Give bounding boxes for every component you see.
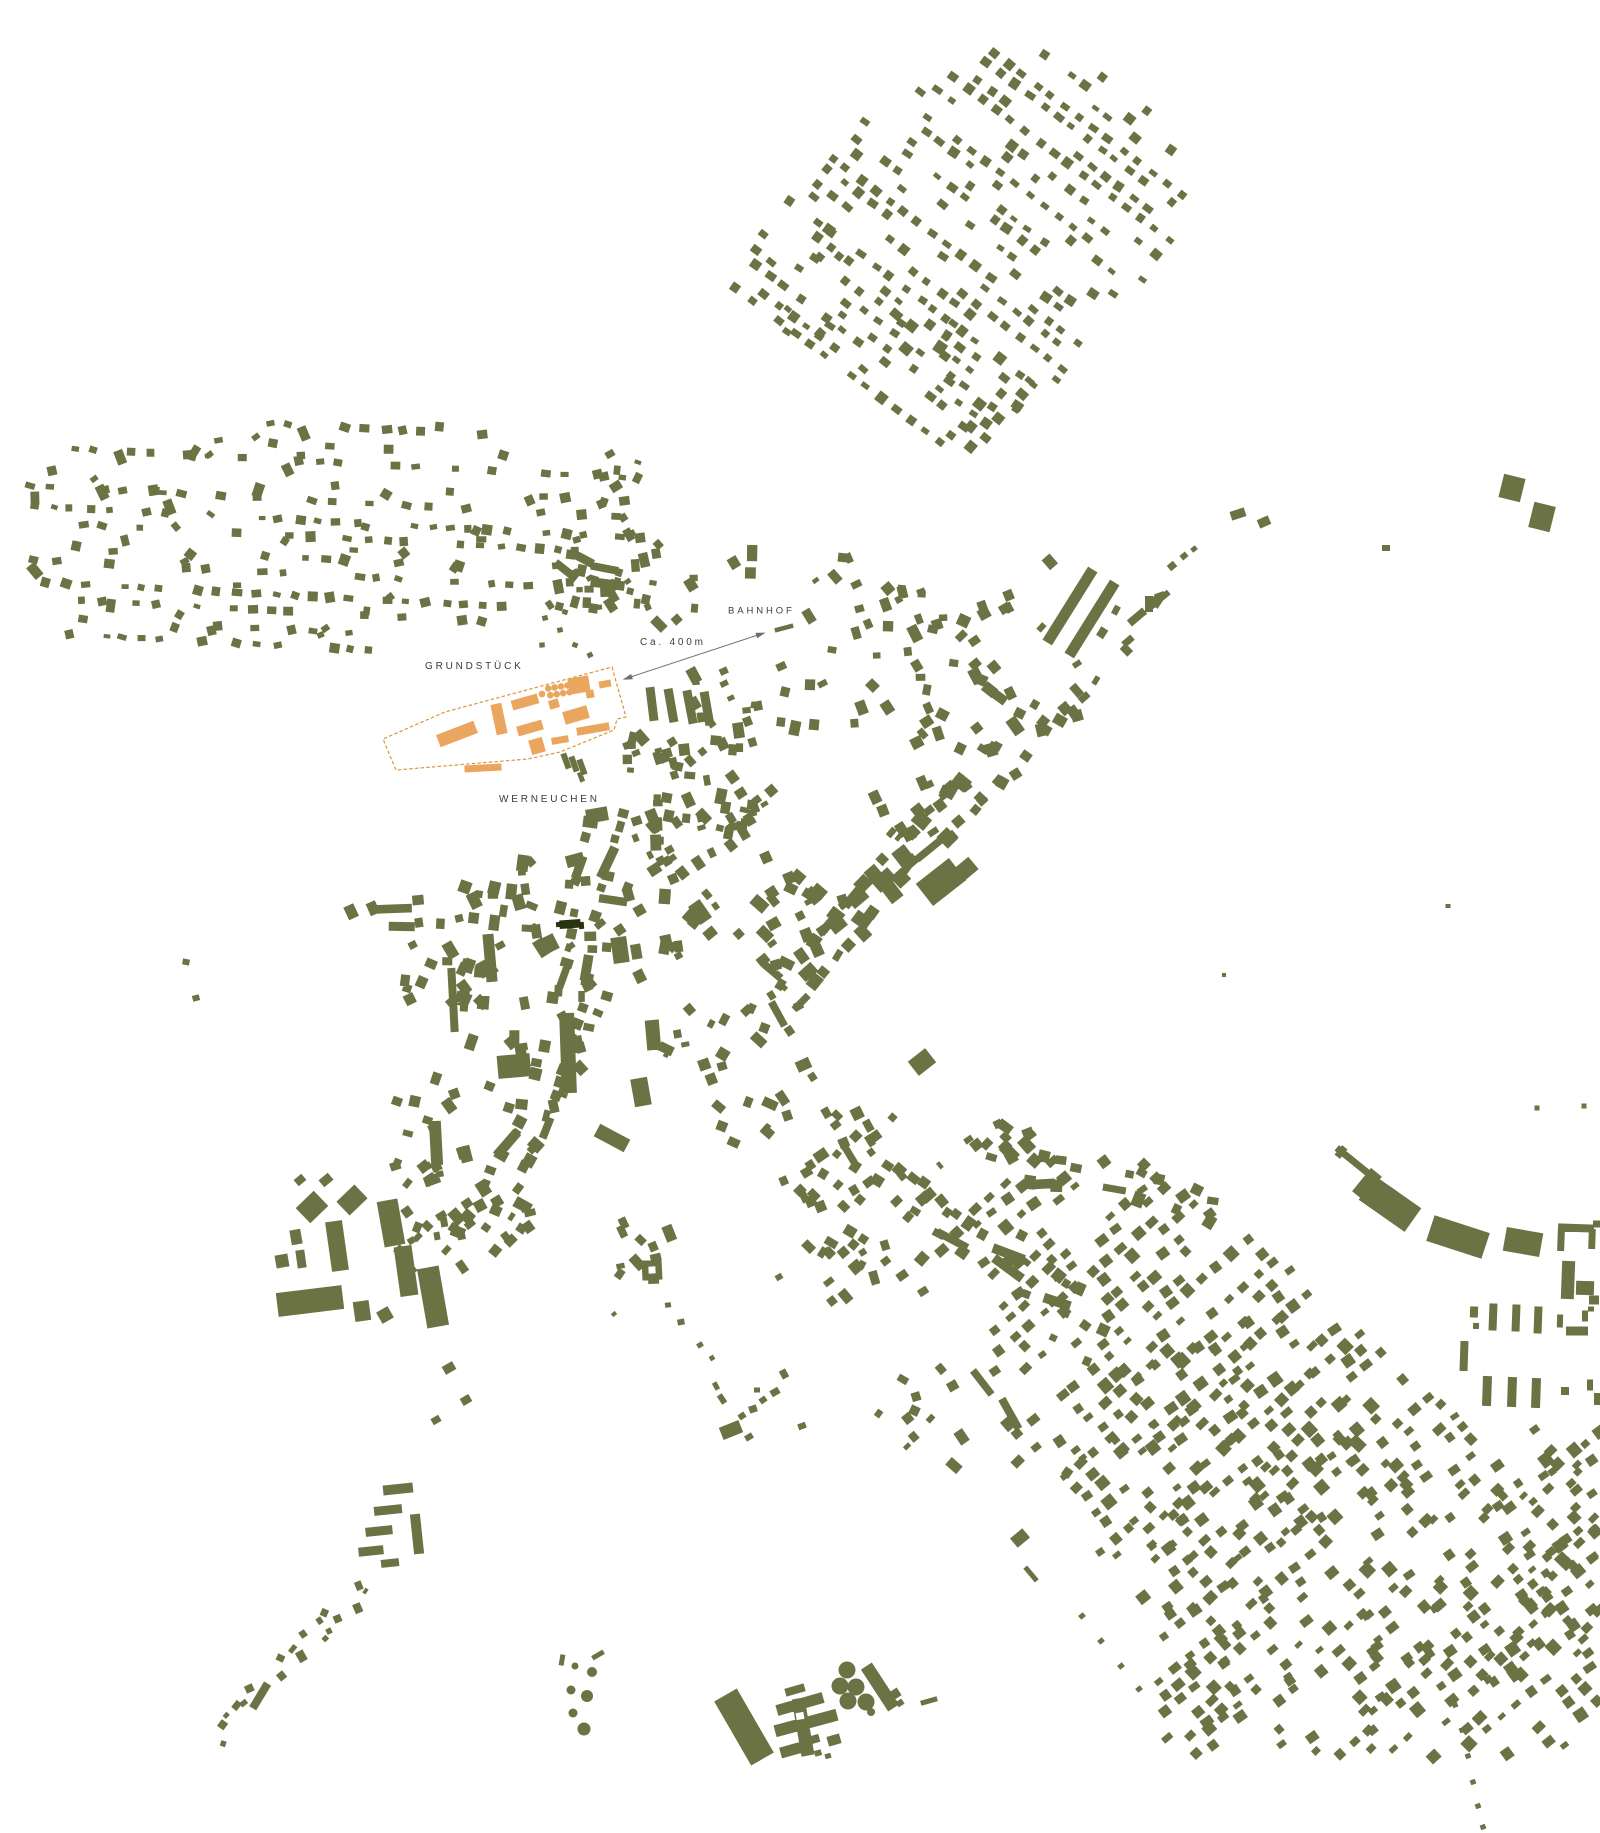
svg-text:WERNEUCHEN: WERNEUCHEN [499, 794, 600, 805]
svg-text:BAHNHOF: BAHNHOF [728, 606, 795, 617]
svg-text:Ca. 400m: Ca. 400m [640, 637, 706, 648]
svg-text:GRUNDSTÜCK: GRUNDSTÜCK [425, 660, 524, 672]
